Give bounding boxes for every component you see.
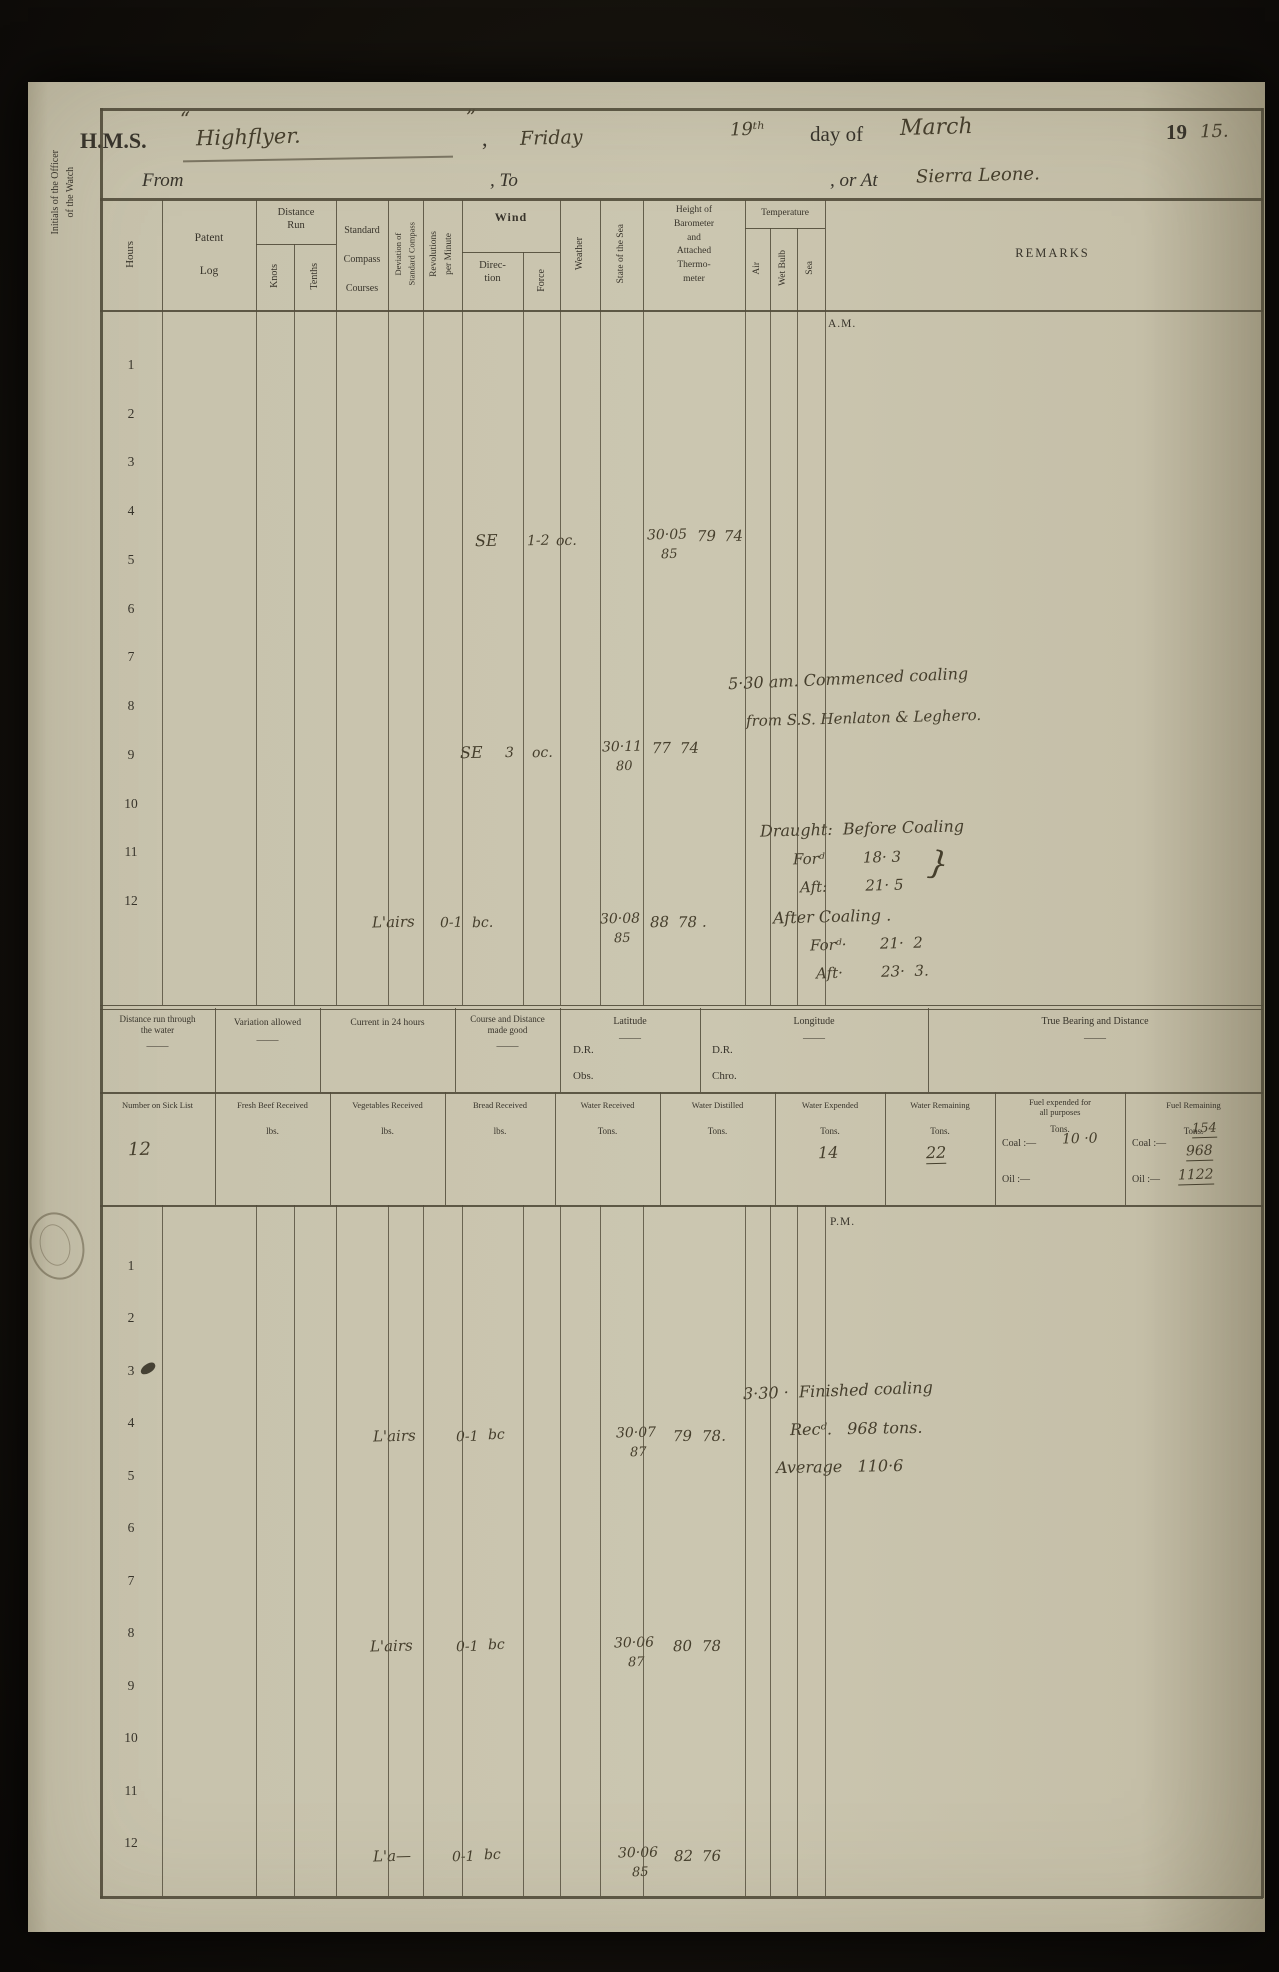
pm-hour-label-8: 8	[116, 1625, 146, 1641]
stats-unit-vegetables: lbs.	[330, 1126, 445, 1137]
pm-row4-temp-wet: 78.	[702, 1428, 726, 1445]
col-header-hours: Hours	[101, 200, 161, 308]
summary-dash-2: ——	[215, 1034, 320, 1046]
summary-longitude: Longitude	[700, 1016, 928, 1028]
fuel-expended-coal-label: Coal :—	[1002, 1138, 1036, 1150]
rule	[256, 310, 257, 1005]
longitude-chro-label: Chro.	[712, 1070, 737, 1083]
rule	[336, 310, 337, 1005]
pm-row8-weather: bc	[488, 1638, 505, 1654]
rule	[560, 310, 561, 1005]
col-header-barometer: Height of Barometer and Attached Thermo-…	[643, 204, 745, 287]
rule	[256, 1205, 257, 1896]
am-hour-label-4: 4	[116, 503, 146, 519]
pm-row4-attached-thermo: 87	[630, 1446, 647, 1461]
col-header-force: Force	[523, 252, 560, 308]
am-hour-label-3: 3	[116, 454, 146, 470]
summary-dash-4: ——	[455, 1040, 560, 1052]
stats-header-vegetables: Vegetables Received	[330, 1100, 445, 1110]
am-row4-barometer: 30·05	[647, 527, 687, 543]
rule	[600, 1205, 601, 1896]
summary-dash-7: ——	[928, 1032, 1262, 1044]
fuel-expended-oil-label: Oil :—	[1002, 1174, 1030, 1186]
latitude-obs-label: Obs.	[573, 1070, 593, 1083]
rule	[560, 1008, 561, 1092]
day-of-label: day of	[810, 122, 863, 147]
pm-row12-wind-direction: L'a—	[373, 1848, 411, 1865]
col-header-sea: Sea	[797, 228, 825, 308]
pm-hour-label-1: 1	[116, 1258, 146, 1274]
pm-row4-barometer: 30·07	[616, 1425, 656, 1441]
rule	[100, 1205, 1263, 1207]
rule	[388, 1205, 389, 1896]
stats-header-fuel-expended: Fuel expended for all purposes	[995, 1097, 1125, 1117]
rule	[745, 200, 746, 310]
am-row8-attached-thermo: 80	[616, 760, 633, 775]
rule	[423, 200, 424, 310]
rule	[455, 1008, 456, 1092]
rule	[462, 252, 560, 253]
am-hour-label-12: 12	[116, 893, 146, 909]
rule	[523, 1205, 524, 1896]
rule	[560, 200, 561, 310]
stats-unit-bread: lbs.	[445, 1126, 555, 1137]
col-header-temperature: Temperature	[745, 208, 825, 219]
rule	[100, 1009, 1263, 1010]
stats-unit-water-expended: Tons.	[775, 1126, 885, 1137]
rule	[660, 1092, 661, 1205]
am-row12-weather: bc.	[472, 916, 494, 932]
stats-unit-fuel-expended: Tons.	[995, 1124, 1125, 1135]
pm-row4-temp-air: 79	[673, 1428, 693, 1445]
am-hour-label-6: 6	[116, 601, 146, 617]
draught-title: Draught: Before Coaling	[760, 817, 964, 840]
fuel-remaining-oil-label: Oil :—	[1132, 1174, 1160, 1186]
am-row4-temp-wet: 74	[724, 528, 744, 545]
from-label: From	[142, 170, 184, 193]
rule	[100, 108, 103, 1898]
signature-flourish	[183, 156, 453, 162]
stats-unit-beef: lbs.	[215, 1126, 330, 1137]
rule	[336, 200, 337, 310]
col-header-wind: Wind	[462, 210, 560, 224]
rule	[555, 1092, 556, 1205]
rule	[100, 108, 1263, 111]
am-row12-barometer: 30·08	[600, 911, 640, 927]
am-row8-barometer: 30·11	[602, 739, 642, 755]
pm-row12-barometer: 30·06	[618, 1845, 658, 1861]
rule	[797, 228, 798, 310]
am-row8-temp-air: 77	[652, 740, 672, 757]
stats-unit-water-distilled: Tons.	[660, 1126, 775, 1137]
col-header-direction: Direc- tion	[462, 260, 523, 285]
rule	[643, 310, 644, 1005]
stats-unit-water-received: Tons.	[555, 1126, 660, 1137]
fuel-remaining-coal-recd: 968	[1186, 1144, 1213, 1162]
pm-hour-label-12: 12	[116, 1835, 146, 1851]
rule	[1125, 1092, 1126, 1205]
am-hour-label-8: 8	[116, 698, 146, 714]
am-row12-wind-force: 0-1	[440, 916, 463, 932]
am-row8-wind-force: 3	[505, 746, 514, 762]
rule	[885, 1092, 886, 1205]
year-written: 15.	[1200, 122, 1229, 143]
pm-label: P.M.	[830, 1216, 855, 1230]
stats-header-water-received: Water Received	[555, 1100, 660, 1110]
rule	[162, 1205, 163, 1896]
pm-row8-temp-air: 80	[673, 1638, 693, 1655]
rule	[928, 1008, 929, 1092]
weekday: Friday	[520, 127, 583, 150]
rule	[462, 200, 463, 310]
summary-dash-5: ——	[560, 1032, 700, 1044]
stats-header-water-expended: Water Expended	[775, 1100, 885, 1110]
rule	[825, 200, 826, 310]
am-row12-attached-thermo: 85	[614, 932, 631, 947]
summary-latitude: Latitude	[560, 1016, 700, 1028]
draught-aft-after: Aft· 23· 3.	[816, 963, 929, 982]
rule	[775, 1092, 776, 1205]
rule	[330, 1092, 331, 1205]
pm-row12-wind-force: 0-1	[452, 1850, 475, 1866]
pm-hour-label-10: 10	[116, 1730, 146, 1746]
col-header-remarks: REMARKS	[843, 246, 1262, 261]
water-remaining-value: 22	[926, 1144, 947, 1164]
rule	[770, 228, 771, 310]
pm-remark-2: Recᵈ. 968 tons.	[790, 1419, 923, 1439]
log-page: Initials of the Officer of the Watch H.M…	[28, 82, 1265, 1932]
pm-row8-wind-force: 0-1	[456, 1640, 479, 1656]
longitude-dr-label: D.R.	[712, 1044, 733, 1057]
am-hour-label-5: 5	[116, 552, 146, 568]
am-row4-attached-thermo: 85	[661, 548, 678, 563]
am-remark-coaling-2: from S.S. Henlaton & Leghero.	[746, 707, 982, 730]
rule	[600, 310, 601, 1005]
rule	[523, 310, 524, 1005]
am-row8-temp-wet: 74	[680, 740, 700, 757]
pm-row12-weather: bc	[484, 1848, 501, 1864]
rule	[797, 310, 798, 1005]
pm-hour-label-2: 2	[116, 1310, 146, 1326]
rule	[643, 200, 644, 310]
fuel-remaining-coal-label: Coal :—	[1132, 1138, 1166, 1150]
am-label: A.M.	[828, 318, 856, 332]
draught-fwd-after: Forᵈ· 21· 2	[810, 935, 923, 954]
rule	[100, 1005, 1263, 1006]
margin-note: Initials of the Officer of the Watch	[46, 122, 80, 262]
rule	[100, 1092, 1263, 1094]
month: March	[900, 115, 973, 141]
am-row8-wind-direction: SE	[460, 744, 483, 762]
pm-hour-label-7: 7	[116, 1573, 146, 1589]
rule	[745, 228, 825, 229]
rule	[162, 310, 163, 1005]
rule	[388, 200, 389, 310]
col-header-distance-run: Distance Run	[256, 206, 336, 232]
rule	[700, 1008, 701, 1092]
summary-course-made-good: Course and Distance made good	[455, 1014, 560, 1036]
draught-fwd-before: Forᵈ 18· 3	[793, 849, 902, 868]
pm-row8-temp-wet: 78	[702, 1638, 722, 1655]
am-row8-weather: oc.	[532, 746, 553, 762]
summary-dash-1: ——	[100, 1040, 215, 1052]
pm-row4-wind-force: 0-1	[456, 1430, 479, 1446]
am-hour-label-1: 1	[116, 357, 146, 373]
rule	[100, 198, 1263, 201]
water-expended-value: 14	[818, 1144, 839, 1162]
rule	[770, 1205, 771, 1896]
rule	[797, 1205, 798, 1896]
am-row4-wind-force: 1-2	[527, 534, 550, 550]
pm-hour-label-4: 4	[116, 1415, 146, 1431]
am-hour-label-10: 10	[116, 796, 146, 812]
stats-header-water-distilled: Water Distilled	[660, 1100, 775, 1110]
fuel-remaining-coal-prev: 154	[1192, 1122, 1217, 1139]
logbook-photo: { "margin_note": "Initials of the Office…	[0, 0, 1279, 1972]
col-header-air: Air	[745, 228, 770, 308]
draught-after-title: After Coaling .	[773, 906, 892, 927]
or-at-label: , or At	[830, 170, 878, 193]
stats-header-sick-list: Number on Sick List	[100, 1100, 215, 1110]
pm-hour-label-5: 5	[116, 1468, 146, 1484]
am-row12-wind-direction: L'airs	[372, 913, 415, 931]
col-header-courses: Standard Compass Courses	[334, 216, 390, 303]
pm-row4-weather: bc	[488, 1428, 505, 1444]
stats-header-water-remaining: Water Remaining	[885, 1100, 995, 1110]
pm-hour-label-9: 9	[116, 1678, 146, 1694]
rule	[600, 200, 601, 310]
am-hour-label-2: 2	[116, 406, 146, 422]
rule	[462, 1205, 463, 1896]
am-hour-label-7: 7	[116, 649, 146, 665]
am-row4-wind-direction: SE	[475, 532, 498, 550]
pm-remark-3: Average 110·6	[776, 1457, 904, 1477]
summary-variation-allowed: Variation allowed	[215, 1018, 320, 1029]
rule	[256, 244, 336, 245]
rule	[294, 310, 295, 1005]
stats-header-fuel-remaining: Fuel Remaining	[1125, 1100, 1262, 1110]
am-row4-weather: oc.	[556, 534, 577, 550]
rule	[643, 1205, 644, 1896]
rule	[995, 1092, 996, 1205]
header-comma: ,	[482, 126, 488, 152]
fuel-remaining-total: 1122	[1178, 1168, 1214, 1186]
rule	[825, 310, 826, 1005]
rule	[256, 200, 257, 310]
rule	[423, 1205, 424, 1896]
rule	[770, 310, 771, 1005]
pm-hour-label-11: 11	[116, 1783, 146, 1799]
place: Sierra Leone.	[916, 164, 1040, 187]
rule	[215, 1092, 216, 1205]
sick-list-value: 12	[128, 1140, 151, 1160]
rule	[423, 310, 424, 1005]
open-quote: “	[180, 108, 191, 130]
rule	[320, 1008, 321, 1092]
day-number: 19ᵗʰ	[730, 120, 766, 141]
pm-row4-wind-direction: L'airs	[373, 1427, 416, 1445]
to-label: , To	[490, 170, 518, 193]
col-header-wet-bulb: Wet Bulb	[770, 228, 797, 308]
summary-distance-run-water: Distance run through the water	[100, 1014, 215, 1036]
pm-row8-barometer: 30·06	[614, 1635, 654, 1651]
rule	[294, 244, 295, 310]
col-header-weather: Weather	[560, 200, 600, 308]
col-header-deviation: Deviation of Standard Compass	[388, 200, 423, 308]
stats-header-bread: Bread Received	[445, 1100, 555, 1110]
pm-row12-attached-thermo: 85	[632, 1866, 649, 1881]
rule	[462, 310, 463, 1005]
latitude-dr-label: D.R.	[573, 1044, 594, 1057]
rule	[745, 310, 746, 1005]
rule	[388, 310, 389, 1005]
am-hour-label-11: 11	[116, 844, 146, 860]
am-remark-coaling-1: 5·30 am. Commenced coaling	[728, 665, 969, 693]
margin-note-text: Initials of the Officer of the Watch	[48, 150, 78, 235]
rule	[100, 1896, 1263, 1899]
pm-row12-temp-wet: 76	[702, 1848, 722, 1865]
rule	[100, 310, 1263, 312]
am-row12-temp-wet: 78 .	[678, 914, 707, 931]
pm-remark-1: 3·30 · Finished coaling	[743, 1379, 933, 1403]
summary-dash-6: ——	[700, 1032, 928, 1044]
ship-name: Highflyer.	[196, 125, 301, 151]
rule	[336, 1205, 337, 1896]
rule	[445, 1092, 446, 1205]
pm-row12-temp-air: 82	[674, 1848, 694, 1865]
rule	[1261, 108, 1264, 1898]
am-row12-temp-air: 88	[650, 914, 670, 931]
rule	[825, 1205, 826, 1896]
col-header-patent-log: Patent Log	[162, 222, 256, 289]
rule	[745, 1205, 746, 1896]
rule	[523, 252, 524, 310]
rule	[215, 1008, 216, 1092]
draught-brace: }	[926, 845, 951, 883]
hms-label: H.M.S.	[80, 128, 147, 154]
fuel-expended-coal-value: 10 ·0	[1062, 1132, 1098, 1148]
col-header-tenths: Tenths	[294, 244, 336, 308]
col-header-revolutions: Revolutions per Minute	[423, 200, 462, 308]
rule	[162, 200, 163, 310]
year-printed: 19	[1166, 120, 1187, 145]
col-header-knots: Knots	[256, 244, 294, 308]
draught-aft-before: Aft: 21· 5	[800, 877, 904, 896]
col-header-state-sea: State of the Sea	[600, 200, 643, 308]
summary-current-24h: Current in 24 hours	[320, 1018, 455, 1029]
am-hour-label-9: 9	[116, 747, 146, 763]
pm-hour-label-6: 6	[116, 1520, 146, 1536]
pm-row8-wind-direction: L'airs	[370, 1637, 413, 1655]
summary-true-bearing: True Bearing and Distance	[928, 1016, 1262, 1028]
rule	[560, 1205, 561, 1896]
rule	[294, 1205, 295, 1896]
stats-unit-water-remaining: Tons.	[885, 1126, 995, 1137]
stats-header-fresh-beef: Fresh Beef Received	[215, 1100, 330, 1110]
am-row4-temp-air: 79	[697, 528, 717, 545]
